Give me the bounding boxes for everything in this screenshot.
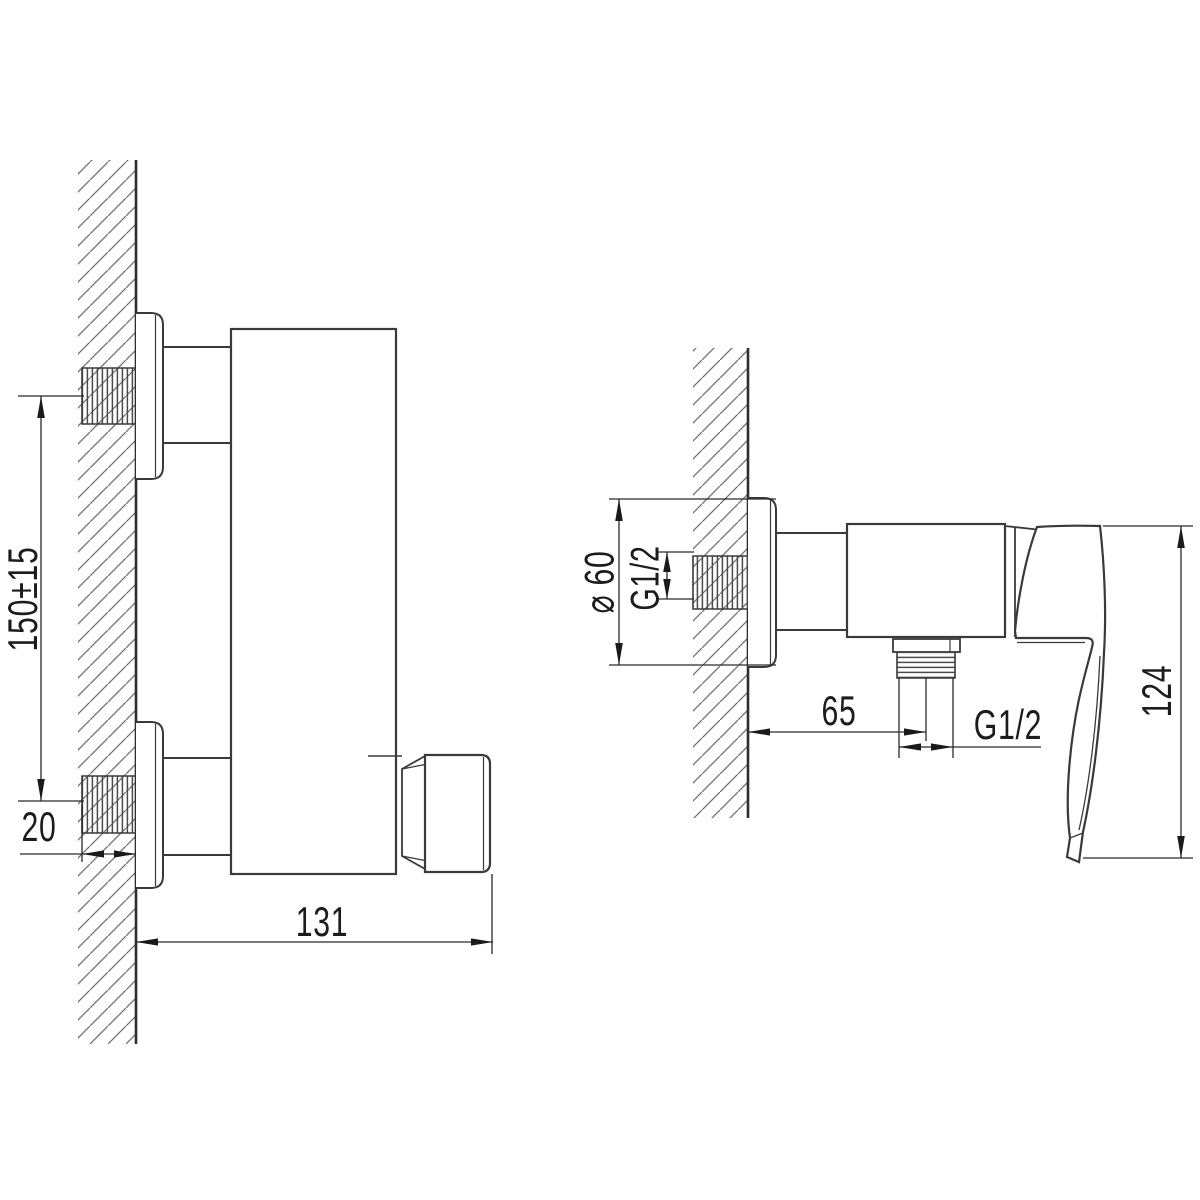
- arrow-left: [899, 743, 921, 750]
- outlet-thread: [897, 652, 955, 678]
- dim-label-inlet-spacing: 150±15: [0, 546, 47, 651]
- mixer-body-profile: [847, 524, 1005, 637]
- lever-handle: [1015, 526, 1105, 862]
- dim-label-handle-length: 124: [1133, 665, 1181, 718]
- escutcheon: [748, 498, 776, 667]
- wall-hatch: [78, 160, 136, 1044]
- handle-neck-end-view: [402, 756, 425, 869]
- arrow-right: [904, 728, 926, 735]
- escutcheon-lower: [136, 722, 163, 888]
- mixer-body-side: [231, 329, 396, 874]
- left-view: [18, 160, 493, 1044]
- handle-neck-line: [1005, 526, 1037, 530]
- dim-label-inlet-thread: G1/2: [624, 545, 669, 610]
- dim-label-outlet-thread: G1/2: [974, 701, 1042, 749]
- arrow-up: [37, 396, 45, 418]
- inlet-thread-lower: [82, 776, 136, 833]
- handle-cap-end-view: [425, 755, 490, 872]
- inlet-thread: [693, 556, 748, 609]
- arrow-down: [37, 779, 45, 801]
- right-view: [609, 348, 1193, 862]
- arrow-left: [748, 728, 770, 735]
- arrow-down: [1177, 836, 1185, 858]
- arrow-right: [931, 743, 953, 750]
- arrow-up: [1177, 526, 1185, 548]
- dim-label-escutcheon-diameter: ⌀ 60: [575, 550, 624, 613]
- dim-label-thread-length: 20: [21, 803, 56, 851]
- arrow-left: [136, 938, 158, 945]
- dim-label-outlet-offset: 65: [821, 687, 856, 735]
- arrow-up: [615, 499, 623, 521]
- arrow-right: [471, 938, 493, 945]
- escutcheon-upper: [136, 313, 163, 479]
- technical-drawing-page: 150±15 20 131 ⌀ 60 G1/2 65 G1/2 124: [0, 0, 1200, 1200]
- dim-label-depth: 131: [296, 898, 349, 946]
- inlet-thread-upper: [82, 368, 136, 424]
- arrow-down: [615, 643, 623, 665]
